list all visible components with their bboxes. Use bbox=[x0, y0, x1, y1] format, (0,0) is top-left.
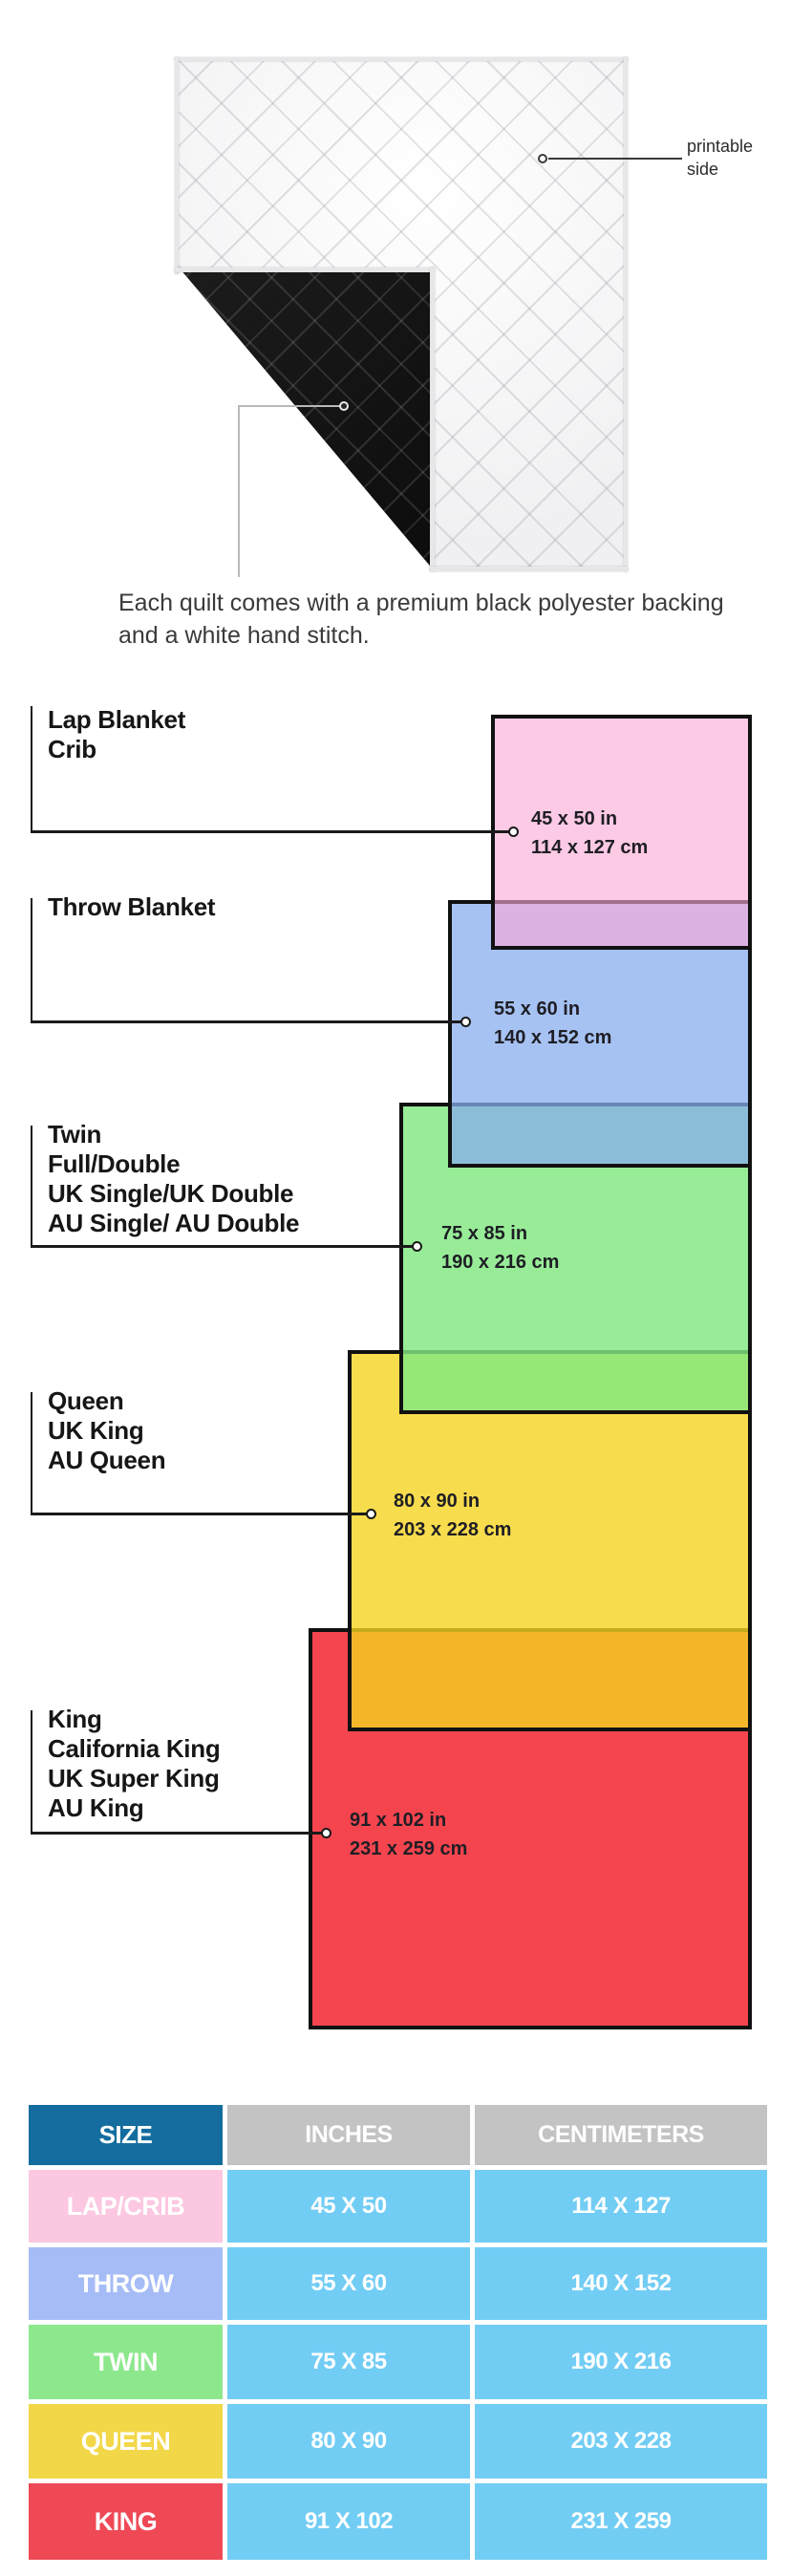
size-cm: 114 x 127 cm bbox=[531, 833, 648, 862]
group-label-line: California King bbox=[48, 1734, 220, 1764]
group-label-king: King California King UK Super King AU Ki… bbox=[48, 1705, 220, 1823]
group-label-line: Queen bbox=[48, 1386, 165, 1416]
quilt-binding-top bbox=[175, 57, 628, 61]
table-cell-inches: 75 X 85 bbox=[227, 2325, 470, 2399]
size-cm: 140 x 152 cm bbox=[494, 1023, 611, 1052]
leader-vertical-throw bbox=[31, 898, 32, 1022]
size-text-throw: 55 x 60 in 140 x 152 cm bbox=[494, 995, 611, 1052]
quilt-binding-fold bbox=[175, 268, 435, 272]
size-inches: 80 x 90 in bbox=[394, 1487, 511, 1515]
backing-leader-line-vertical bbox=[238, 405, 240, 577]
size-inches: 75 x 85 in bbox=[441, 1219, 559, 1248]
group-label-lap: Lap Blanket Crib bbox=[48, 705, 185, 764]
group-label-line: UK King bbox=[48, 1416, 165, 1446]
size-cm: 190 x 216 cm bbox=[441, 1248, 559, 1277]
size-table: SIZE INCHES CENTIMETERS LAP/CRIB 45 X 50… bbox=[29, 2105, 767, 2560]
group-label-line: Throw Blanket bbox=[48, 892, 215, 922]
group-label-twin: Twin Full/Double UK Single/UK Double AU … bbox=[48, 1120, 299, 1238]
table-cell-inches: 55 X 60 bbox=[227, 2247, 470, 2320]
table-header-size: SIZE bbox=[29, 2105, 223, 2165]
quilt-size-guide: printable side Each quilt comes with a p… bbox=[0, 0, 791, 2576]
leader-vertical-lap bbox=[31, 706, 32, 832]
group-label-line: AU Queen bbox=[48, 1446, 165, 1475]
leader-dot-king bbox=[321, 1828, 331, 1838]
leader-horizontal-king bbox=[31, 1832, 324, 1835]
size-cm: 231 x 259 cm bbox=[350, 1835, 467, 1863]
leader-dot-twin bbox=[412, 1241, 422, 1252]
table-row-label: KING bbox=[29, 2483, 223, 2560]
size-text-twin: 75 x 85 in 190 x 216 cm bbox=[441, 1219, 559, 1277]
table-row-label: TWIN bbox=[29, 2325, 223, 2399]
table-row-label: THROW bbox=[29, 2247, 223, 2320]
table-row-label: QUEEN bbox=[29, 2404, 223, 2479]
table-cell-cm: 231 X 259 bbox=[475, 2483, 767, 2560]
table-header-centimeters: CENTIMETERS bbox=[475, 2105, 767, 2165]
group-label-throw: Throw Blanket bbox=[48, 892, 215, 922]
table-cell-inches: 45 X 50 bbox=[227, 2170, 470, 2243]
leader-vertical-twin bbox=[31, 1126, 32, 1247]
printable-side-marker-icon bbox=[538, 154, 547, 163]
leader-horizontal-throw bbox=[31, 1020, 463, 1023]
group-label-line: Lap Blanket bbox=[48, 705, 185, 735]
leader-vertical-queen bbox=[31, 1392, 32, 1514]
quilt-binding-right bbox=[624, 57, 628, 571]
size-cm: 203 x 228 cm bbox=[394, 1515, 511, 1544]
size-inches: 45 x 50 in bbox=[531, 805, 648, 833]
quilt-photo bbox=[175, 57, 628, 571]
leader-horizontal-twin bbox=[31, 1245, 415, 1248]
group-label-line: Crib bbox=[48, 735, 185, 764]
leader-horizontal-queen bbox=[31, 1513, 369, 1515]
table-cell-inches: 80 X 90 bbox=[227, 2404, 470, 2479]
group-label-line: Twin bbox=[48, 1120, 299, 1149]
size-inches: 55 x 60 in bbox=[494, 995, 611, 1023]
size-text-king: 91 x 102 in 231 x 259 cm bbox=[350, 1806, 467, 1863]
table-cell-cm: 114 X 127 bbox=[475, 2170, 767, 2243]
group-label-queen: Queen UK King AU Queen bbox=[48, 1386, 165, 1475]
size-inches: 91 x 102 in bbox=[350, 1806, 467, 1835]
group-label-line: UK Super King bbox=[48, 1764, 220, 1793]
group-label-line: AU King bbox=[48, 1793, 220, 1823]
table-cell-cm: 203 X 228 bbox=[475, 2404, 767, 2479]
group-label-line: Full/Double bbox=[48, 1149, 299, 1179]
group-label-line: King bbox=[48, 1705, 220, 1734]
table-cell-cm: 140 X 152 bbox=[475, 2247, 767, 2320]
table-row-label: LAP/CRIB bbox=[29, 2170, 223, 2243]
printable-side-label: printable side bbox=[687, 135, 775, 181]
leader-dot-throw bbox=[460, 1017, 471, 1027]
leader-horizontal-lap bbox=[31, 830, 511, 833]
leader-dot-lap bbox=[508, 826, 519, 837]
leader-vertical-king bbox=[31, 1710, 32, 1834]
leader-dot-queen bbox=[366, 1509, 376, 1519]
quilt-binding-left bbox=[175, 57, 179, 274]
printable-side-leader-line bbox=[548, 158, 682, 160]
backing-marker-icon bbox=[339, 401, 349, 411]
table-cell-inches: 91 X 102 bbox=[227, 2483, 470, 2560]
group-label-line: AU Single/ AU Double bbox=[48, 1209, 299, 1238]
backing-leader-line-horizontal bbox=[239, 405, 340, 407]
quilt-binding-bottom bbox=[430, 567, 628, 571]
size-text-queen: 80 x 90 in 203 x 228 cm bbox=[394, 1487, 511, 1544]
group-label-line: UK Single/UK Double bbox=[48, 1179, 299, 1209]
quilt-binding-fold-edge bbox=[430, 268, 435, 571]
backing-caption: Each quilt comes with a premium black po… bbox=[118, 587, 738, 652]
size-text-lap: 45 x 50 in 114 x 127 cm bbox=[531, 805, 648, 862]
table-cell-cm: 190 X 216 bbox=[475, 2325, 767, 2399]
table-header-inches: INCHES bbox=[227, 2105, 470, 2165]
